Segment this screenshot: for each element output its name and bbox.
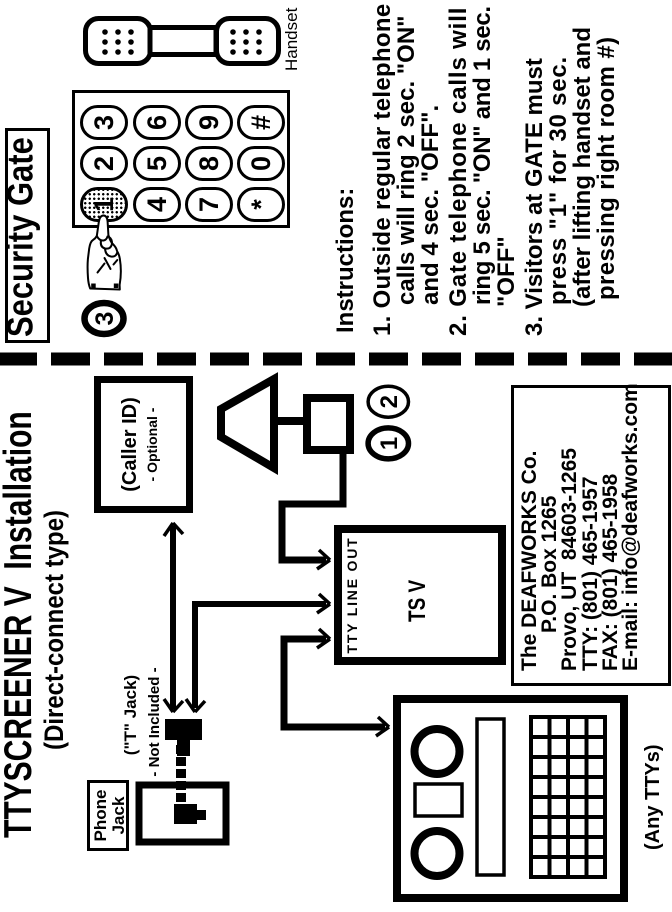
svg-text:1: 1 [376, 437, 403, 450]
svg-text:2: 2 [376, 395, 403, 408]
svg-text:3: 3 [91, 312, 119, 326]
